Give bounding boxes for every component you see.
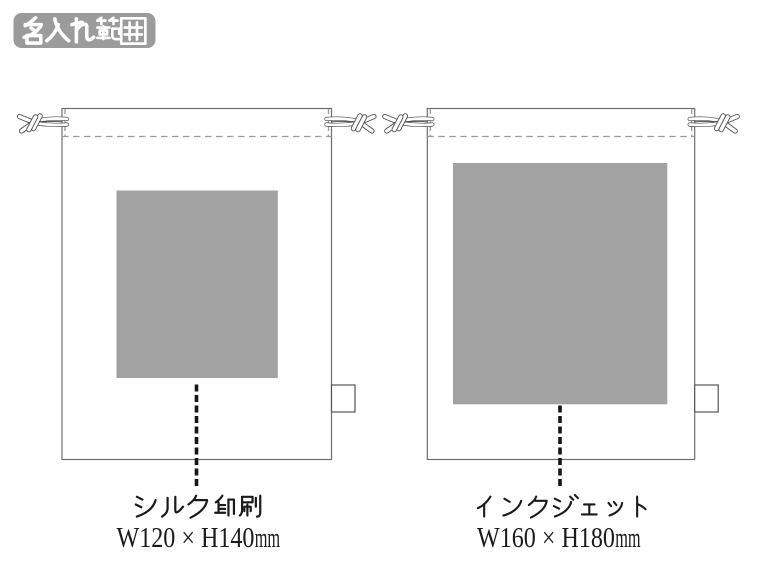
svg-text:mm: mm	[255, 523, 281, 554]
svg-text:W120 × H140: W120 × H140	[117, 522, 255, 553]
svg-text:mm: mm	[615, 523, 641, 554]
svg-text:W160 × H180: W160 × H180	[477, 522, 615, 553]
